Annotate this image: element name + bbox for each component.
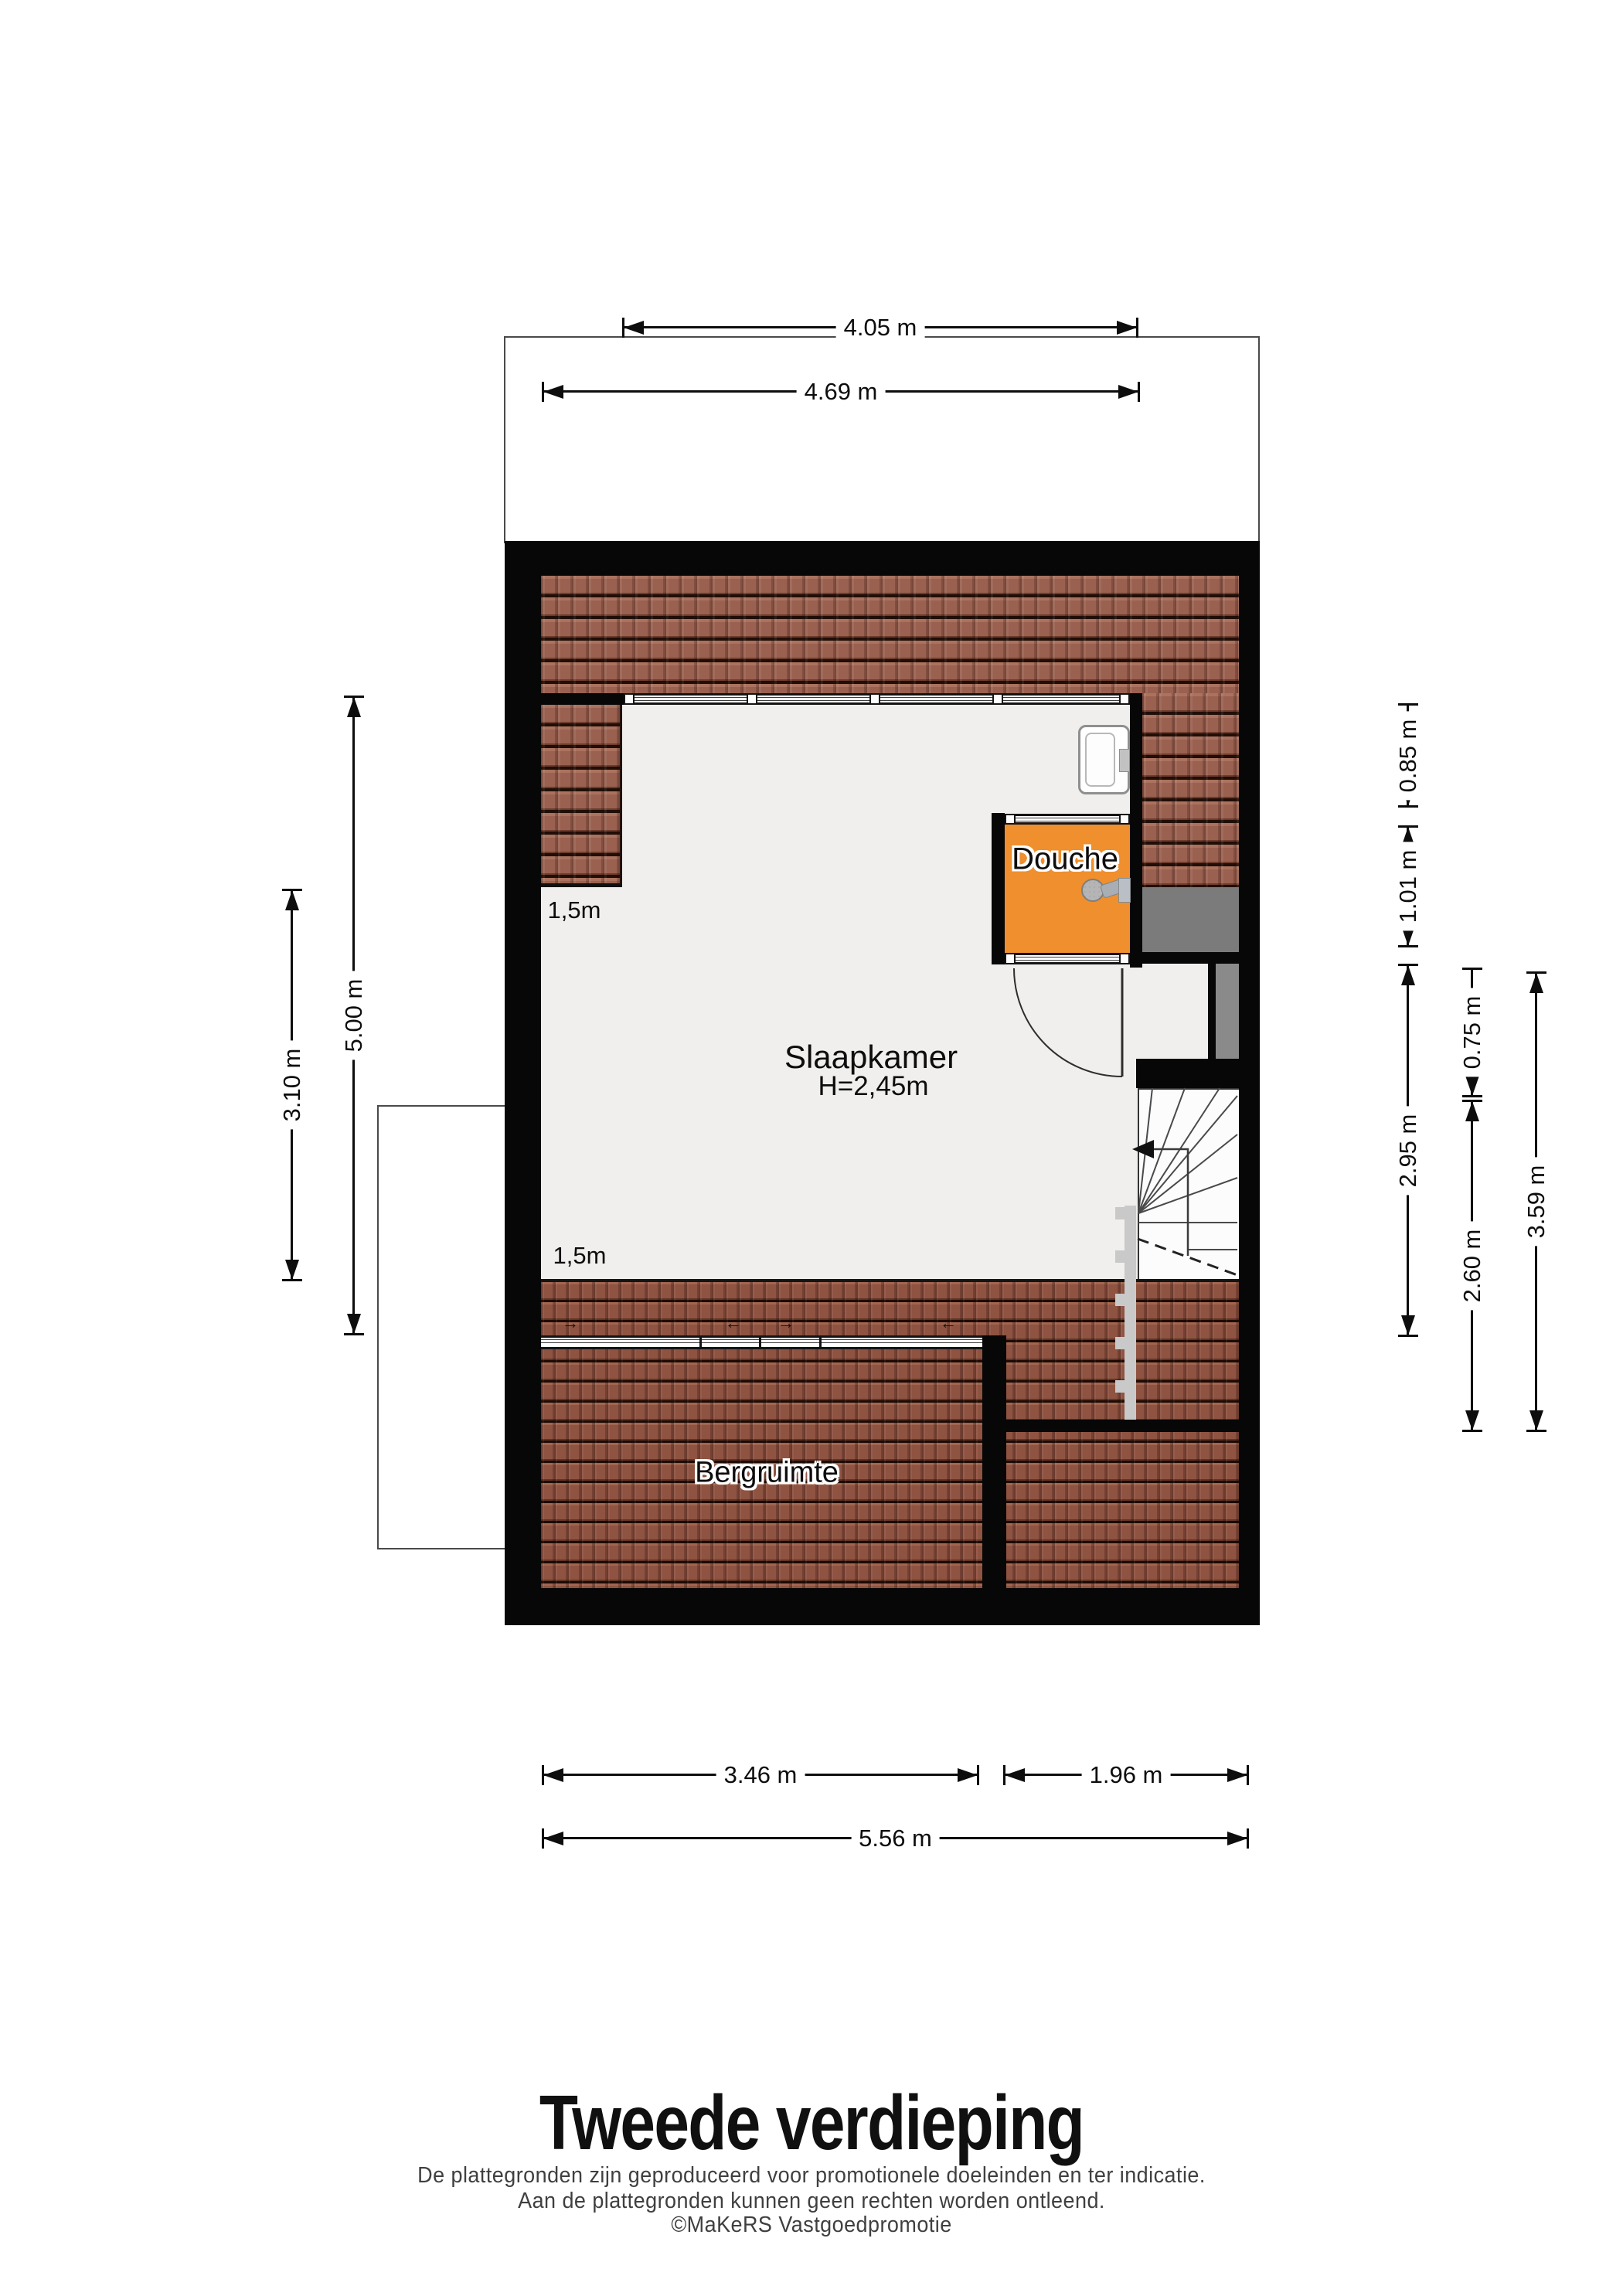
floorplan-body: → ← → ← Slaap [505, 541, 1260, 1625]
dim-right-e: 2.60 m [1457, 1100, 1488, 1432]
disclaimer-line-2: Aan de plattegronden kunnen geen rechten… [57, 2189, 1567, 2214]
dim-label: 0.85 m [1393, 711, 1423, 800]
bedroom-label: Slaapkamer [784, 1039, 958, 1076]
dim-right-d: 0.75 m [1457, 968, 1488, 1097]
dim-right-c: 2.95 m [1393, 964, 1424, 1337]
page-title: Tweede verdieping [146, 2079, 1477, 2168]
dim-bottom-right: 1.96 m [1003, 1760, 1249, 1791]
stair-direction-arrow-icon [1132, 1140, 1154, 1158]
dim-right-b: 1.01 m [1393, 825, 1424, 947]
dim-label: 5.00 m [339, 971, 369, 1060]
disclaimer-line-1: De plattegronden zijn geproduceerd voor … [57, 2163, 1567, 2189]
left-dormer-outline [377, 1105, 509, 1549]
dim-label: 4.69 m [797, 377, 886, 406]
dim-left-outer: 5.00 m [339, 696, 369, 1335]
bedroom-height-label: H=2,45m [818, 1071, 929, 1102]
dim-left-inner: 3.10 m [277, 889, 308, 1281]
dim-label: 2.95 m [1393, 1106, 1423, 1195]
dim-label: 4.05 m [836, 313, 925, 342]
dim-label: 2.60 m [1458, 1222, 1487, 1311]
dim-right-f: 3.59 m [1521, 971, 1552, 1432]
top-dormer-outline [504, 336, 1260, 543]
storage-label: Bergruimte [695, 1457, 839, 1490]
knee-wall-label-lower: 1,5m [553, 1242, 607, 1270]
dim-label: 0.75 m [1458, 988, 1487, 1077]
dim-right-a: 0.85 m [1393, 703, 1424, 808]
dim-bottom-total: 5.56 m [542, 1823, 1249, 1854]
dim-label: 5.56 m [851, 1824, 940, 1853]
knee-wall-label-upper: 1,5m [548, 896, 601, 924]
dim-label: 3.59 m [1522, 1158, 1551, 1247]
dim-bottom-left: 3.46 m [542, 1760, 979, 1791]
dim-label: 1.01 m [1393, 842, 1423, 931]
shower-label: Douche [1012, 842, 1118, 877]
dim-top-outer: 4.05 m [622, 312, 1138, 343]
door-swing-arc [1014, 968, 1122, 1077]
dim-label: 1.96 m [1082, 1760, 1171, 1790]
dim-label: 3.46 m [716, 1760, 805, 1790]
floorplan-page: → ← → ← Slaap [0, 0, 1623, 2296]
copyright-line: ©MaKeRS Vastgoedpromotie [57, 2213, 1567, 2238]
dim-label: 3.10 m [277, 1041, 307, 1130]
dim-top-inner: 4.69 m [542, 376, 1140, 407]
